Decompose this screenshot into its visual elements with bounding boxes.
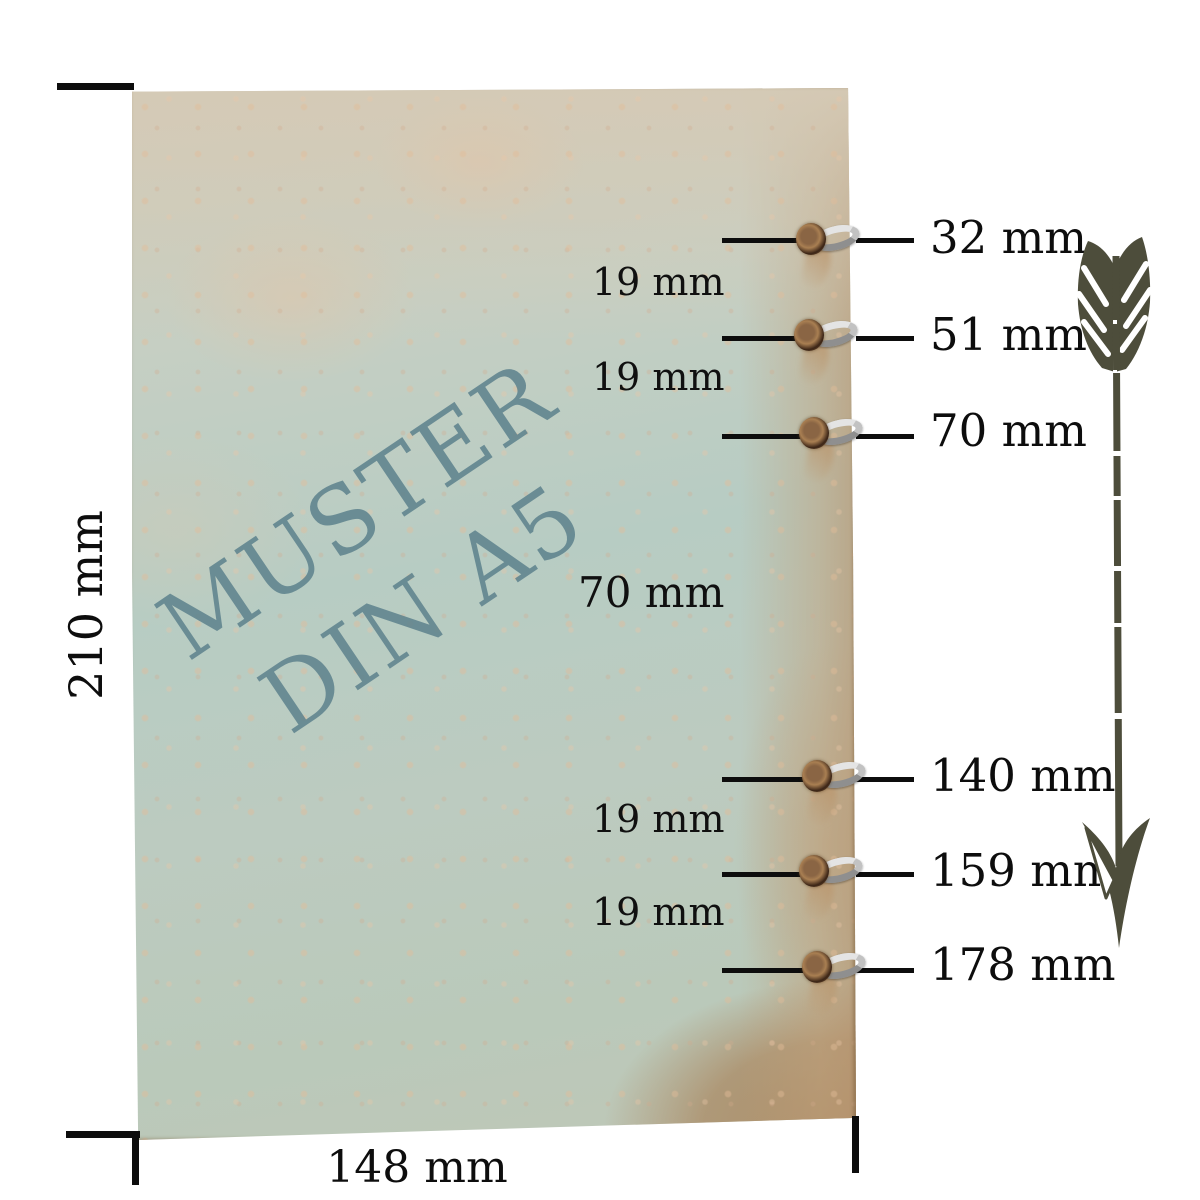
eyelet-3 (799, 416, 835, 452)
leader-line-left-1 (722, 238, 804, 243)
leader-line-left-6 (722, 968, 804, 973)
leader-line-right-3 (856, 434, 914, 439)
eyelet-2 (794, 318, 830, 354)
dimension-tick-bottom-left-v (132, 1131, 139, 1185)
grommet-icon (799, 855, 829, 887)
eyelet-1 (796, 222, 832, 258)
height-dimension-label: 210 mm (63, 495, 109, 715)
leader-line-right-2 (856, 336, 914, 341)
leader-line-right-6 (856, 968, 914, 973)
leader-line-right-1 (856, 238, 914, 243)
grommet-icon (796, 223, 826, 255)
eyelet-4 (802, 759, 838, 795)
grommet-icon (802, 951, 832, 983)
leader-line-left-5 (722, 872, 804, 877)
dimension-tick-top-left (57, 83, 134, 90)
eyelet-6 (802, 950, 838, 986)
grommet-icon (794, 319, 824, 351)
spacing-label-19mm-2: 19 mm (592, 358, 725, 396)
spacing-label-19mm-1: 19 mm (592, 263, 725, 301)
leader-line-right-4 (856, 777, 914, 782)
dimension-tick-bottom-left-h (66, 1131, 140, 1138)
diagram-canvas: MUSTER DIN A5 19 mm 19 mm 70 mm 19 mm 19… (0, 0, 1200, 1200)
spacing-label-19mm-3: 19 mm (592, 800, 725, 838)
leader-line-right-5 (856, 872, 914, 877)
width-dimension-label: 148 mm (322, 1146, 512, 1190)
leader-line-left-3 (722, 434, 804, 439)
grommet-icon (799, 417, 829, 449)
grommet-icon (802, 760, 832, 792)
dimension-tick-bottom-right (852, 1116, 859, 1173)
leader-line-left-4 (722, 777, 804, 782)
leader-line-left-2 (722, 336, 804, 341)
eyelet-5 (799, 854, 835, 890)
spacing-label-70mm: 70 mm (578, 572, 724, 614)
spacing-label-19mm-4: 19 mm (592, 893, 725, 931)
down-arrow-icon (1064, 226, 1180, 954)
